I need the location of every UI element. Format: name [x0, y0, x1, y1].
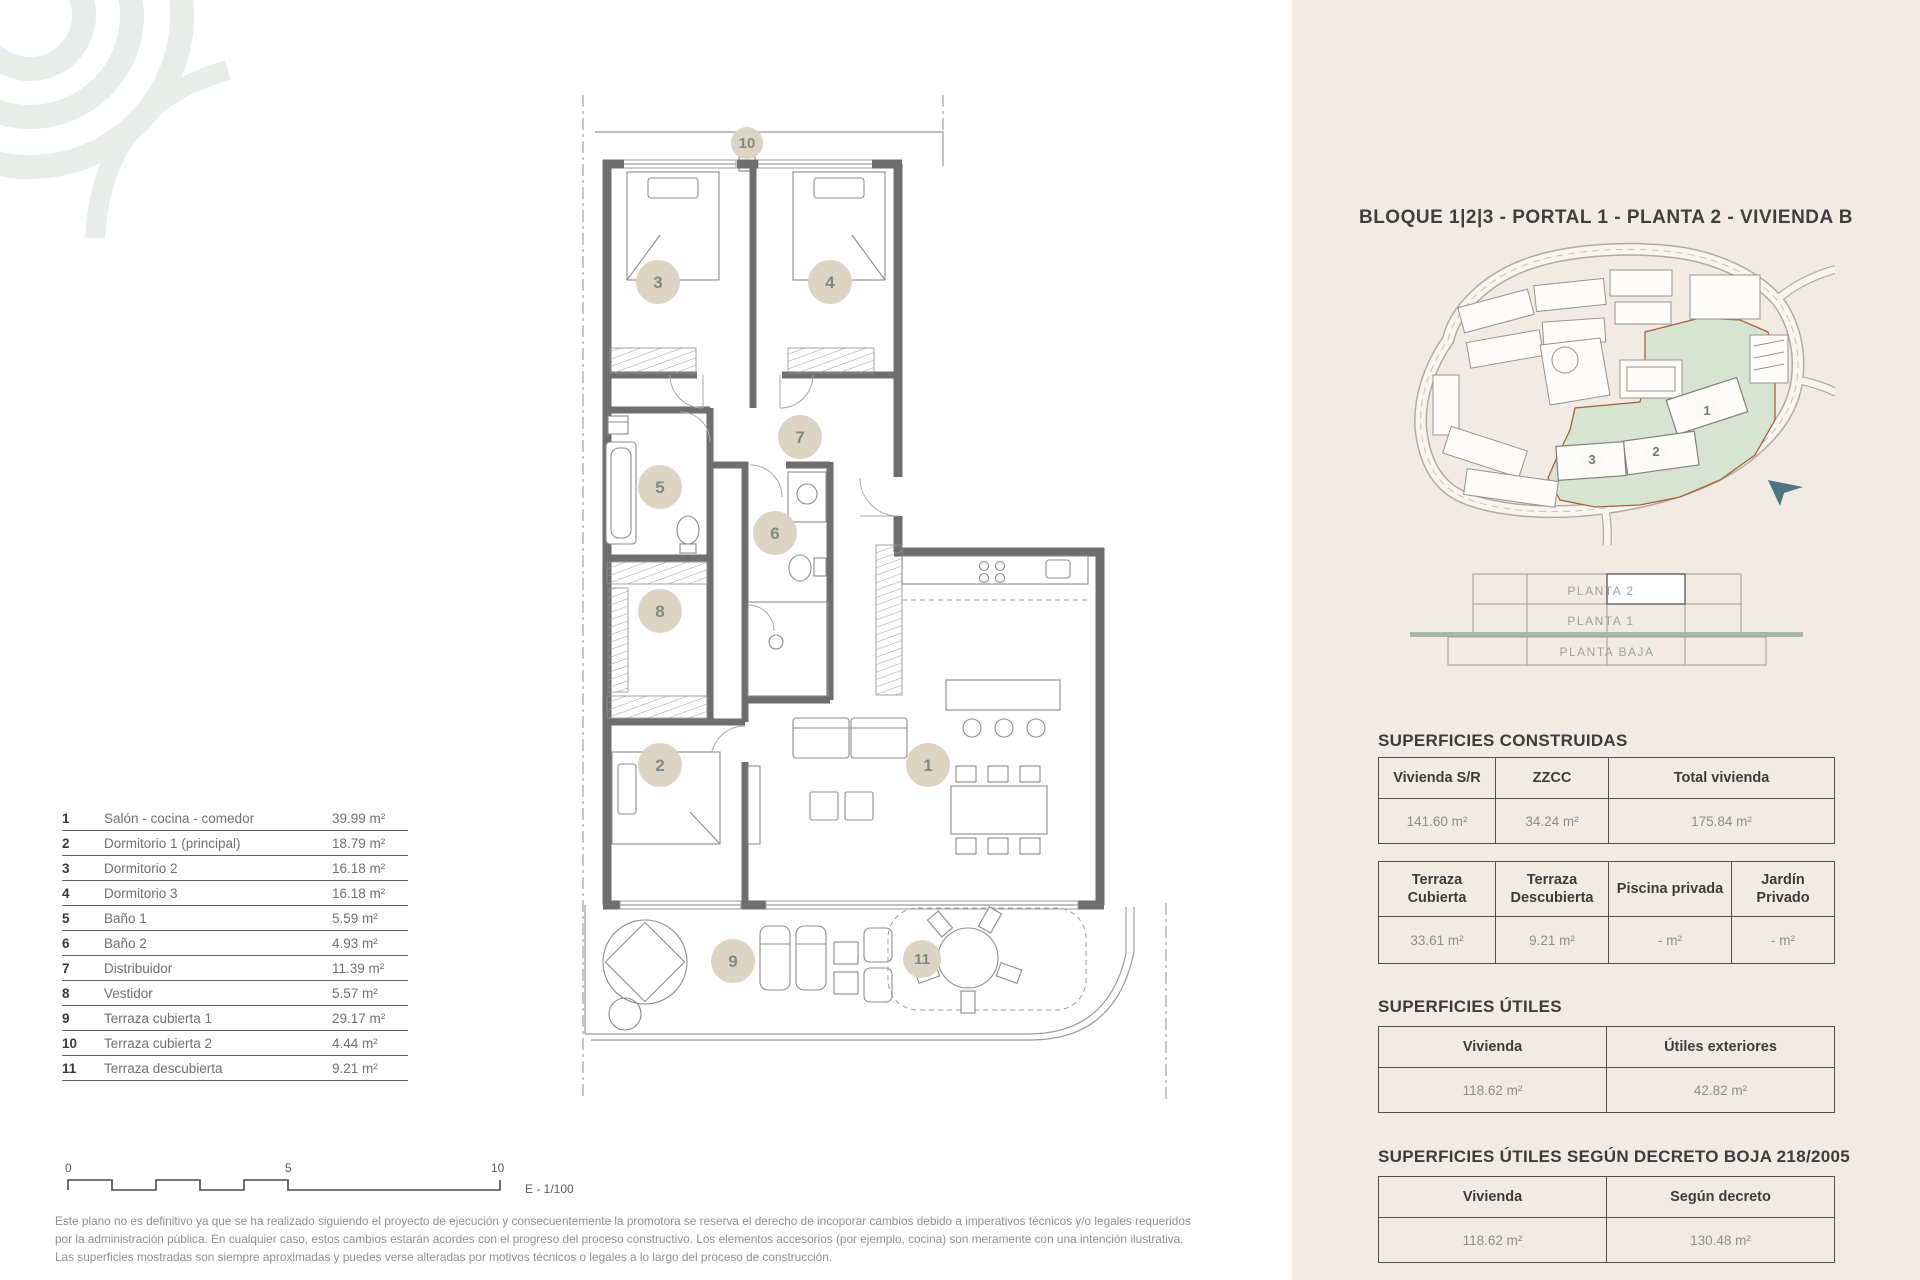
info-panel: BLOQUE 1|2|3 - PORTAL 1 - PLANTA 2 - VIV… [1292, 0, 1920, 1280]
scale-ratio: E - 1/100 [525, 1182, 574, 1196]
table-value-cell: 42.82 m² [1607, 1068, 1834, 1112]
table-value-cell: 9.21 m² [1496, 917, 1608, 963]
legend-row: 6Baño 24.93 m² [62, 931, 408, 956]
ground-line [1410, 632, 1803, 637]
legend-row: 2Dormitorio 1 (principal)18.79 m² [62, 831, 408, 856]
orientation-arrow-icon [1768, 480, 1803, 506]
svg-text:7: 7 [795, 428, 804, 447]
terrace-outline [585, 905, 1134, 1040]
legend-row: 10Terraza cubierta 24.44 m² [62, 1031, 408, 1056]
disclaimer-line: Las superficies mostradas son siempre ap… [55, 1248, 1280, 1266]
room-area: 11.39 m² [332, 961, 408, 976]
table-decreto: Vivienda Según decreto 118.62 m² 130.48 … [1378, 1176, 1835, 1263]
floor-label: PLANTA 1 [1567, 614, 1634, 628]
room-name: Dormitorio 3 [104, 886, 332, 901]
section-heading-decreto: SUPERFICIES ÚTILES SEGÚN DECRETO BOJA 21… [1378, 1147, 1850, 1167]
sun-loungers [760, 926, 892, 1002]
room-name: Terraza cubierta 2 [104, 1036, 332, 1051]
room-name: Baño 1 [104, 911, 332, 926]
room-name: Distribuidor [104, 961, 332, 976]
table-value-cell: 175.84 m² [1609, 799, 1834, 843]
table-value-cell: 141.60 m² [1379, 799, 1495, 843]
scale-bar-line [68, 1180, 500, 1190]
bathroom-fixtures [748, 472, 828, 696]
svg-text:8: 8 [655, 602, 664, 621]
room-number: 7 [62, 961, 104, 976]
floor-label: PLANTA BAJA [1560, 645, 1655, 659]
svg-text:5: 5 [655, 478, 664, 497]
room-area: 18.79 m² [332, 836, 408, 851]
sofa [748, 718, 907, 844]
room-area: 5.57 m² [332, 986, 408, 1001]
room-number: 9 [62, 1011, 104, 1026]
table-value-cell: - m² [1732, 917, 1834, 963]
table-value-cell: 118.62 m² [1379, 1068, 1606, 1112]
svg-text:11: 11 [914, 951, 930, 968]
dining-table [951, 766, 1047, 854]
room-number: 6 [62, 936, 104, 951]
disclaimer-line: por la administración pública. En cualqu… [55, 1230, 1280, 1248]
svg-text:1: 1 [923, 756, 932, 775]
table-value-cell: 34.24 m² [1496, 799, 1608, 843]
table-header-cell: ZZCC [1496, 758, 1608, 798]
scale-tick-10: 10 [491, 1161, 505, 1175]
floor-label: PLANTA 2 [1567, 584, 1634, 598]
floor-plan: 1 2 3 4 5 6 7 8 9 10 11 [480, 90, 1180, 1105]
room-number: 3 [62, 861, 104, 876]
room-name: Vestidor [104, 986, 332, 1001]
room-area: 4.93 m² [332, 936, 408, 951]
room-legend: 1Salón - cocina - comedor39.99 m² 2Dormi… [62, 806, 408, 1081]
table-header-cell: Según decreto [1607, 1177, 1834, 1217]
room-name: Salón - cocina - comedor [104, 811, 332, 826]
room-number: 1 [62, 811, 104, 826]
table-value-cell: 33.61 m² [1379, 917, 1495, 963]
room-number: 10 [62, 1036, 104, 1051]
room-name: Baño 2 [104, 936, 332, 951]
table-header-cell: Jardín Privado [1732, 862, 1834, 916]
table-value-cell: 130.48 m² [1607, 1218, 1834, 1262]
legend-row: 11Terraza descubierta9.21 m² [62, 1056, 408, 1081]
room-number: 2 [62, 836, 104, 851]
table-header-cell: Útiles exteriores [1607, 1027, 1834, 1067]
table-header-cell: Total vivienda [1609, 758, 1834, 798]
svg-text:3: 3 [653, 273, 662, 292]
table-header-cell: Terraza Descubierta [1496, 862, 1608, 916]
room-name: Terraza cubierta 1 [104, 1011, 332, 1026]
scale-tick-0: 0 [65, 1161, 72, 1175]
table-header-cell: Vivienda S/R [1379, 758, 1495, 798]
table-construidas-principal: Vivienda S/R ZZCC Total vivienda 141.60 … [1378, 757, 1835, 844]
block-label: 2 [1652, 444, 1659, 459]
block-label: 3 [1588, 452, 1595, 467]
scale-bar: 0 5 10 E - 1/100 [55, 1158, 635, 1206]
room-area: 39.99 m² [332, 811, 408, 826]
section-heading-utiles: SUPERFICIES ÚTILES [1378, 997, 1562, 1017]
site-map: 1 2 3 [1405, 240, 1835, 545]
table-value-cell: 118.62 m² [1379, 1218, 1606, 1262]
legend-row: 4Dormitorio 316.18 m² [62, 881, 408, 906]
room-area: 16.18 m² [332, 886, 408, 901]
brand-logo [0, 0, 300, 250]
disclaimer-line: Este plano no es definitivo ya que se ha… [55, 1212, 1280, 1230]
legend-row: 9Terraza cubierta 129.17 m² [62, 1006, 408, 1031]
table-header-cell: Vivienda [1379, 1027, 1606, 1067]
room-area: 16.18 m² [332, 861, 408, 876]
scale-tick-5: 5 [285, 1161, 292, 1175]
legend-row: 7Distribuidor11.39 m² [62, 956, 408, 981]
room-area: 29.17 m² [332, 1011, 408, 1026]
legend-row: 1Salón - cocina - comedor39.99 m² [62, 806, 408, 831]
kitchen-island [946, 680, 1060, 737]
table-header-cell: Vivienda [1379, 1177, 1606, 1217]
table-header-cell: Piscina privada [1609, 862, 1731, 916]
logo-arcs-icon [0, 0, 228, 238]
block-label: 1 [1703, 403, 1710, 418]
svg-text:10: 10 [739, 135, 756, 152]
disclaimer: Este plano no es definitivo ya que se ha… [55, 1212, 1280, 1266]
svg-text:4: 4 [825, 273, 835, 292]
room-name: Terraza descubierta [104, 1061, 332, 1076]
table-construidas-exterior: Terraza Cubierta Terraza Descubierta Pis… [1378, 861, 1835, 964]
room-area: 4.44 m² [332, 1036, 408, 1051]
bed [627, 172, 719, 280]
daybed [603, 920, 687, 1030]
room-number: 11 [62, 1061, 104, 1076]
legend-row: 3Dormitorio 216.18 m² [62, 856, 408, 881]
svg-text:9: 9 [728, 952, 737, 971]
section-heading-construidas: SUPERFICIES CONSTRUIDAS [1378, 731, 1628, 751]
svg-text:6: 6 [770, 524, 779, 543]
room-number: 5 [62, 911, 104, 926]
room-name: Dormitorio 1 (principal) [104, 836, 332, 851]
kitchen-counter [902, 556, 1088, 600]
page-title: BLOQUE 1|2|3 - PORTAL 1 - PLANTA 2 - VIV… [1292, 207, 1920, 229]
table-value-cell: - m² [1609, 917, 1731, 963]
room-number: 8 [62, 986, 104, 1001]
room-area: 5.59 m² [332, 911, 408, 926]
svg-text:2: 2 [655, 756, 664, 775]
legend-row: 5Baño 15.59 m² [62, 906, 408, 931]
table-utiles: Vivienda Útiles exteriores 118.62 m² 42.… [1378, 1026, 1835, 1113]
room-name: Dormitorio 2 [104, 861, 332, 876]
room-area: 9.21 m² [332, 1061, 408, 1076]
room-number: 4 [62, 886, 104, 901]
floor-locator-diagram: PLANTA 2 PLANTA 1 PLANTA BAJA [1405, 560, 1835, 680]
table-header-cell: Terraza Cubierta [1379, 862, 1495, 916]
legend-row: 8Vestidor5.57 m² [62, 981, 408, 1006]
